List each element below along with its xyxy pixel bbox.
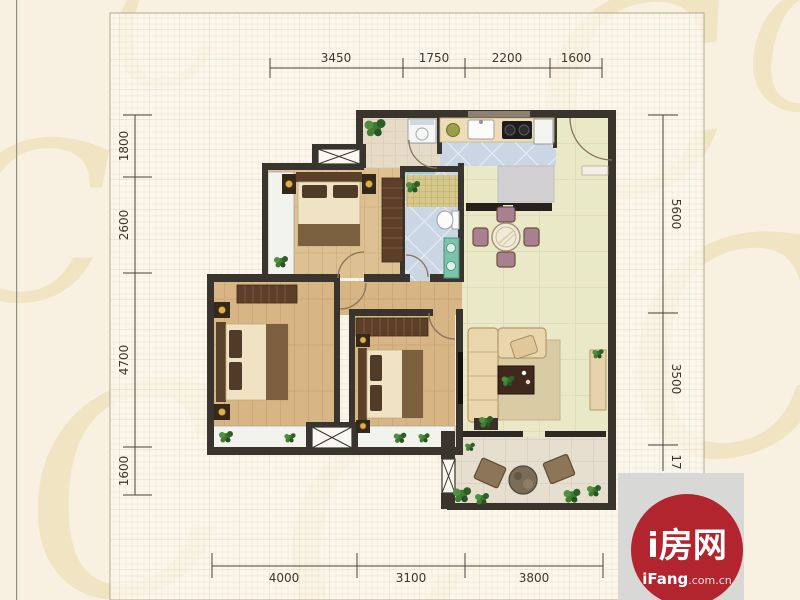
wardrobe (237, 285, 297, 303)
dining-chair (497, 252, 515, 267)
kitchen-mat (498, 166, 554, 202)
dim-top-1: 1750 (419, 51, 450, 65)
lamp (360, 337, 366, 343)
lamp (366, 181, 373, 188)
washer-controls (410, 120, 434, 125)
pillow (229, 330, 242, 358)
lamp (219, 409, 226, 416)
dim-top-0: 3450 (321, 51, 352, 65)
watermark-glyph: C (745, 0, 800, 151)
terrace-table (509, 466, 537, 494)
blanket (402, 350, 423, 418)
floor-plan (207, 110, 616, 510)
dim-bottom-1: 3100 (396, 571, 427, 585)
dim-right-2: 17 (669, 454, 683, 469)
wardrobe (382, 178, 403, 262)
logo-brand-text: i房网 (647, 526, 727, 566)
terrace-table-texture (514, 472, 522, 480)
page-edge-line (16, 0, 17, 600)
dim-right-0: 5600 (669, 199, 683, 230)
dim-left-0: 1800 (117, 131, 131, 162)
dim-left-2: 4700 (117, 345, 131, 376)
terrace-table-texture (523, 479, 533, 489)
pillow (370, 385, 382, 411)
dining-chair (473, 228, 488, 246)
dim-top-3: 1600 (561, 51, 592, 65)
burner (505, 125, 515, 135)
basin (447, 244, 456, 253)
logo-ifang: i房网 iFang.com.cn (618, 473, 744, 600)
burner (519, 125, 529, 135)
floorplan-page: C C C C C C C (0, 0, 800, 600)
dining-chair (497, 207, 515, 222)
pillow (302, 185, 327, 198)
dim-bottom-2: 3800 (519, 571, 550, 585)
pillow (229, 362, 242, 390)
dim-left-3: 1600 (117, 456, 131, 487)
entry-window-sill (582, 166, 608, 175)
blanket (266, 324, 288, 400)
tv (458, 352, 463, 404)
dining-chair (524, 228, 539, 246)
lamp (360, 423, 366, 429)
dim-left-1: 2600 (117, 210, 131, 241)
cup (526, 380, 530, 384)
logo-domain-bold: iFang (642, 570, 688, 588)
dim-right-1: 3500 (669, 364, 683, 395)
lamp (286, 181, 293, 188)
cup (522, 371, 526, 375)
sofa (468, 328, 498, 422)
dim-top-2: 2200 (492, 51, 523, 65)
pillow (333, 185, 358, 198)
bed-headboard (216, 322, 226, 402)
dim-bottom-0: 4000 (269, 571, 300, 585)
side-cabinet (590, 350, 606, 410)
pillow (370, 355, 382, 381)
kitchen-bowl (447, 124, 460, 137)
faucet (479, 120, 483, 124)
logo-domain-suffix: .com.cn (688, 574, 732, 587)
fridge (534, 119, 553, 144)
bed-headboard (358, 348, 367, 420)
lamp (219, 307, 226, 314)
basin (447, 262, 456, 271)
bed-headboard (296, 172, 362, 182)
floorplan-canvas: C C C C C C C (0, 0, 800, 600)
blanket (298, 224, 360, 246)
toilet-bowl (437, 211, 453, 229)
wardrobe (356, 318, 428, 336)
